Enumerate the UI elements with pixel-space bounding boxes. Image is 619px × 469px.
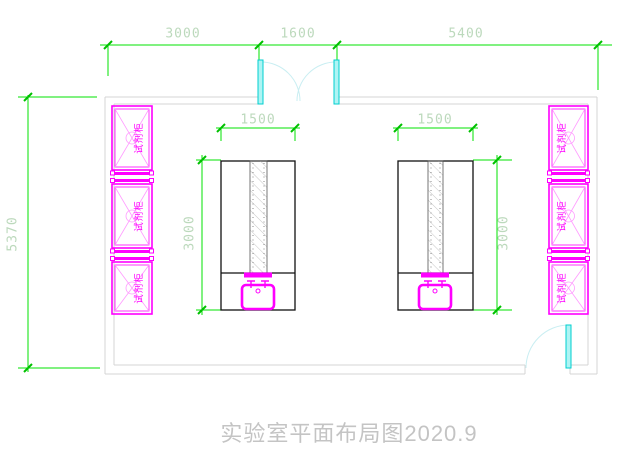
reagent-cabinet [549, 184, 588, 248]
door-leaf [258, 60, 263, 104]
lab-table-left [221, 161, 295, 310]
door-swing-arc [261, 62, 300, 101]
floor-plan-drawing [0, 0, 619, 469]
reagent-cabinet [549, 106, 588, 170]
double-door-top [258, 60, 339, 104]
single-door-bottom-right [526, 325, 571, 368]
door-leaf [566, 325, 571, 368]
hatched-duct-column [428, 161, 443, 273]
cabinet-column-right [548, 106, 590, 314]
reagent-cabinet [112, 106, 152, 170]
dimension-ticks [24, 41, 602, 372]
cabinet-column-left [111, 106, 154, 314]
dimension-lines [18, 45, 612, 372]
door-swing-arc [526, 325, 569, 368]
reagent-cabinet [549, 262, 588, 314]
reagent-cabinet [112, 262, 152, 314]
cabinet-connector [111, 171, 154, 183]
door-swing-arc [297, 62, 336, 101]
walls [105, 97, 597, 374]
reagent-cabinet [112, 184, 152, 248]
cabinet-connector [548, 249, 590, 261]
cabinet-connector [111, 249, 154, 261]
cabinet-connector [548, 171, 590, 183]
lab-table-right [398, 161, 473, 310]
floor-plan-canvas: 3000 1600 5400 5370 1500 3000 1500 3000 … [0, 0, 619, 469]
door-leaf [334, 60, 339, 104]
